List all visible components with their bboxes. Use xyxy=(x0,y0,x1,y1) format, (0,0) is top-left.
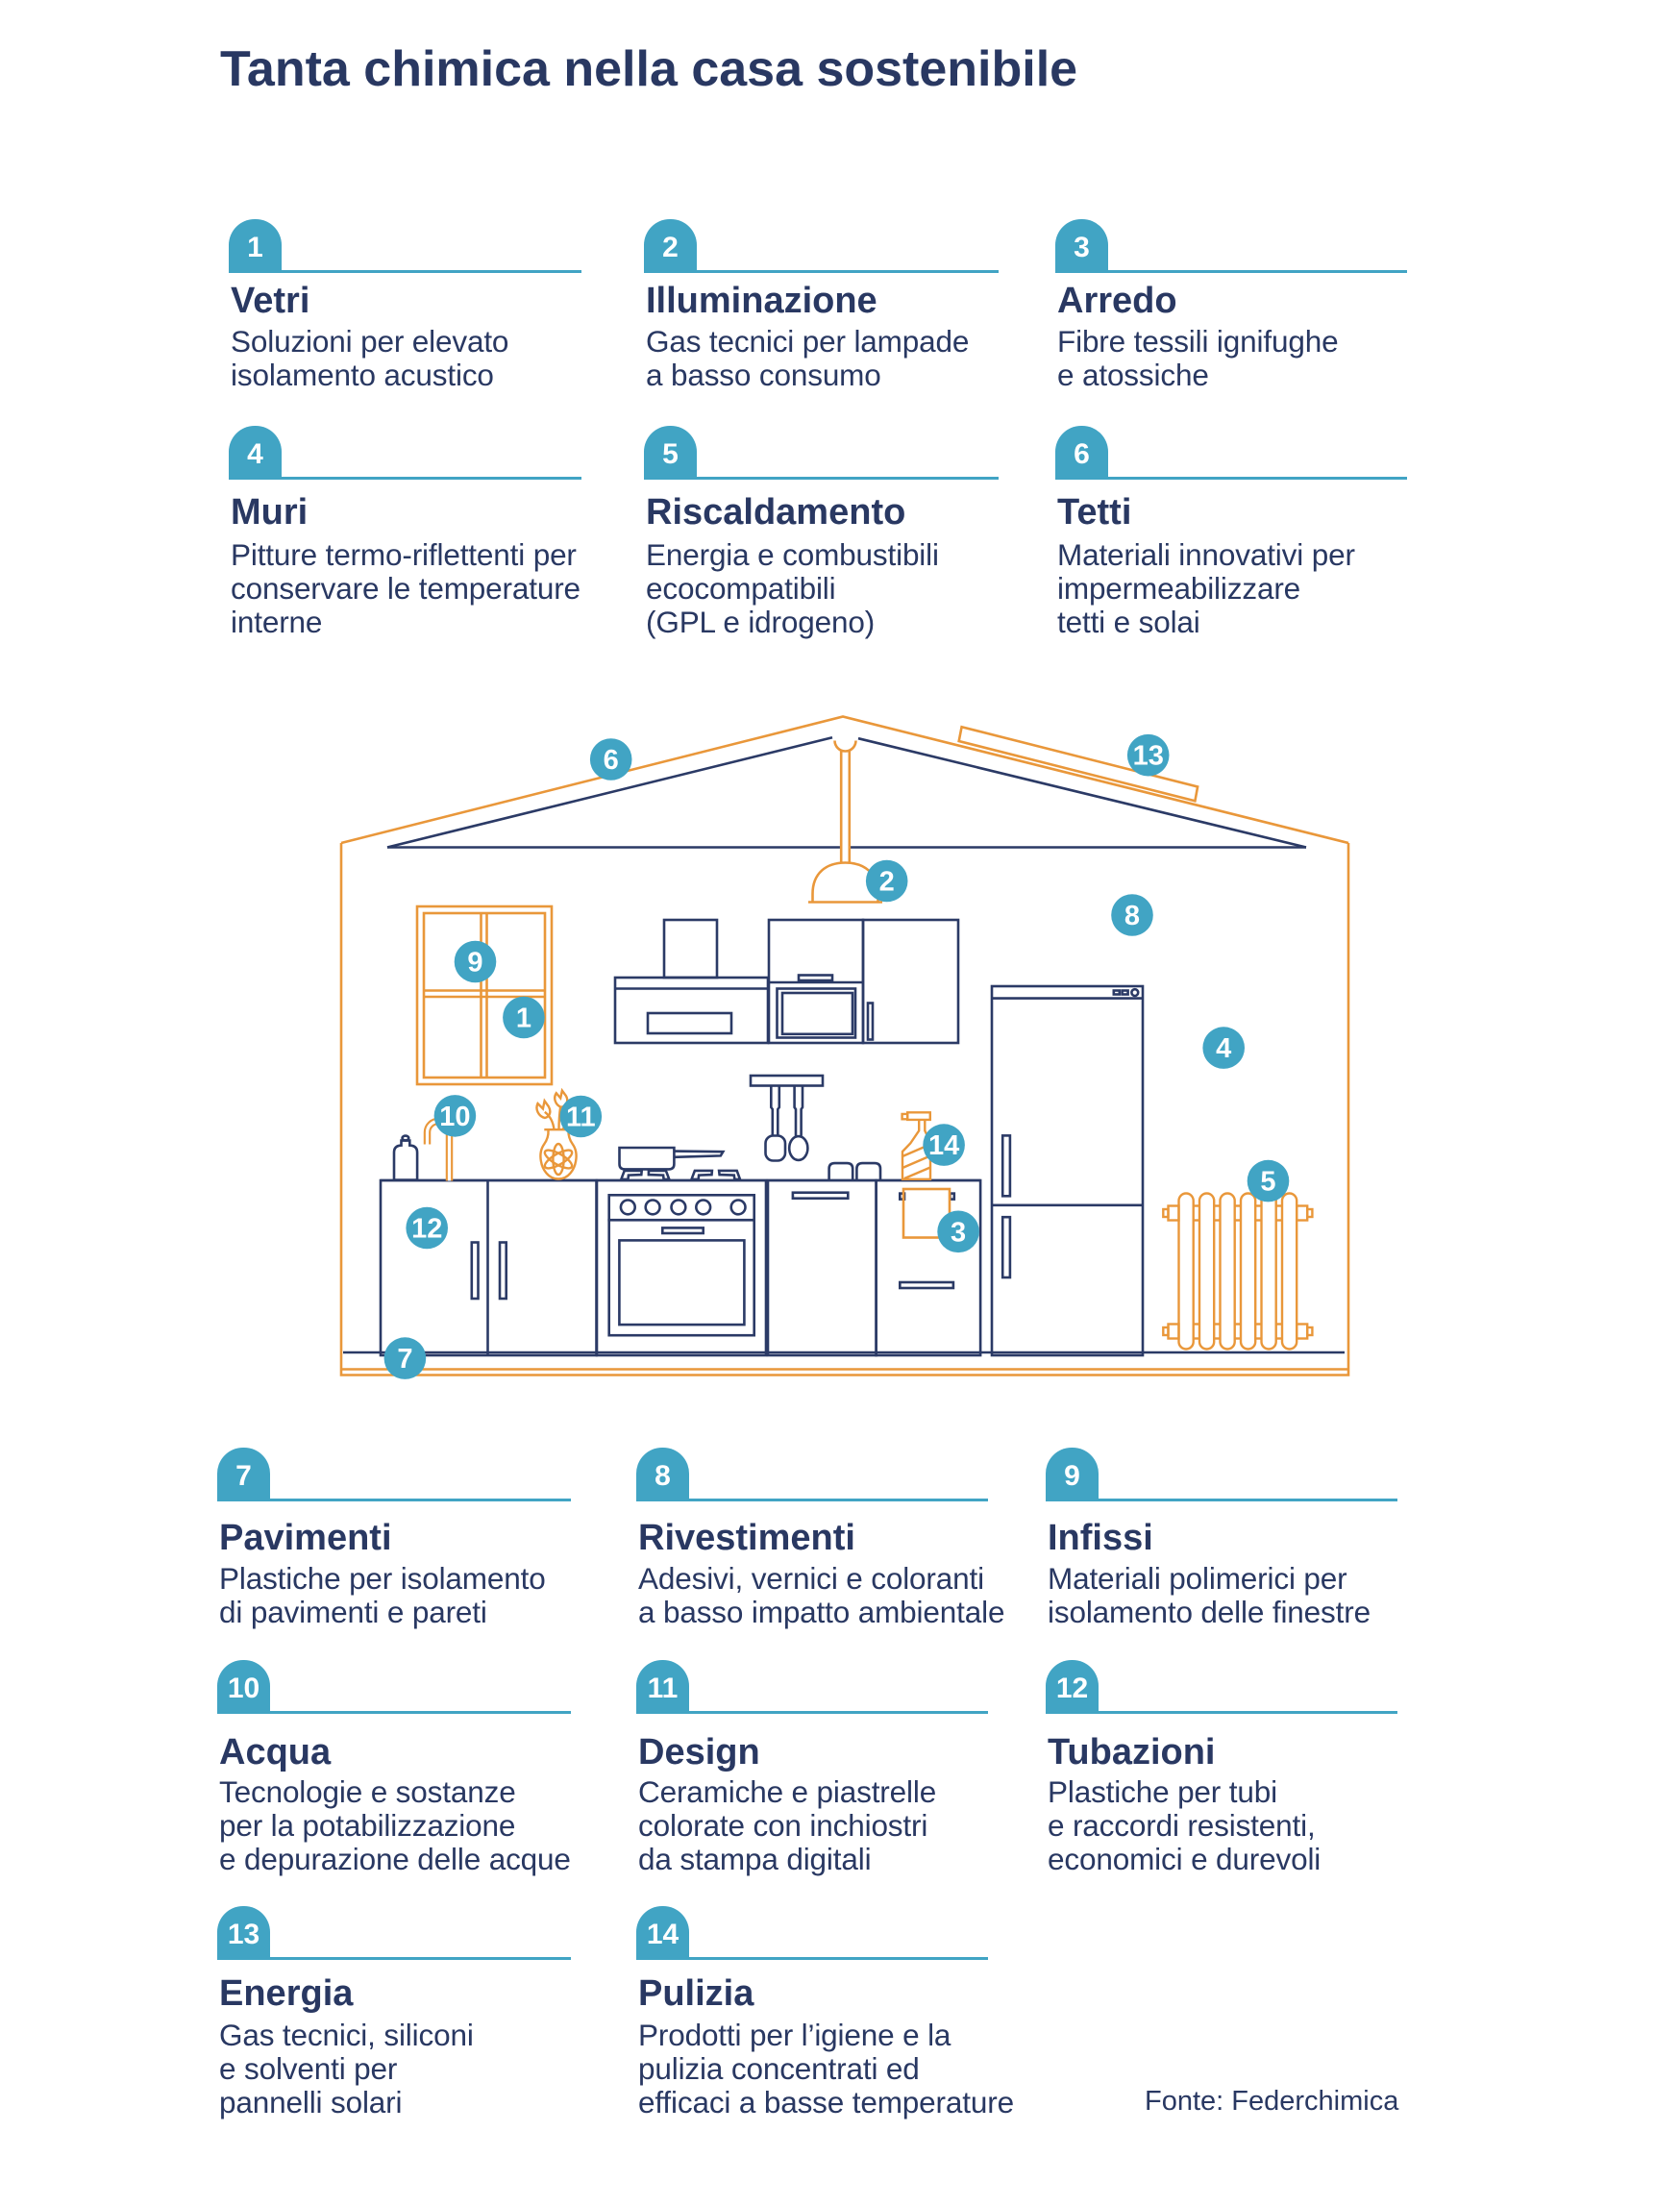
svg-text:14: 14 xyxy=(928,1130,959,1161)
svg-text:4: 4 xyxy=(1216,1033,1231,1064)
svg-text:2: 2 xyxy=(879,867,895,898)
svg-text:10: 10 xyxy=(439,1102,470,1132)
svg-text:6: 6 xyxy=(604,745,619,776)
svg-text:5: 5 xyxy=(1260,1167,1275,1198)
svg-text:3: 3 xyxy=(951,1217,966,1248)
svg-text:8: 8 xyxy=(1124,901,1140,931)
svg-text:7: 7 xyxy=(397,1344,412,1375)
svg-text:1: 1 xyxy=(516,1004,531,1034)
svg-text:12: 12 xyxy=(411,1214,442,1245)
svg-text:13: 13 xyxy=(1133,741,1164,772)
svg-text:11: 11 xyxy=(566,1103,596,1133)
svg-text:9: 9 xyxy=(467,948,482,979)
